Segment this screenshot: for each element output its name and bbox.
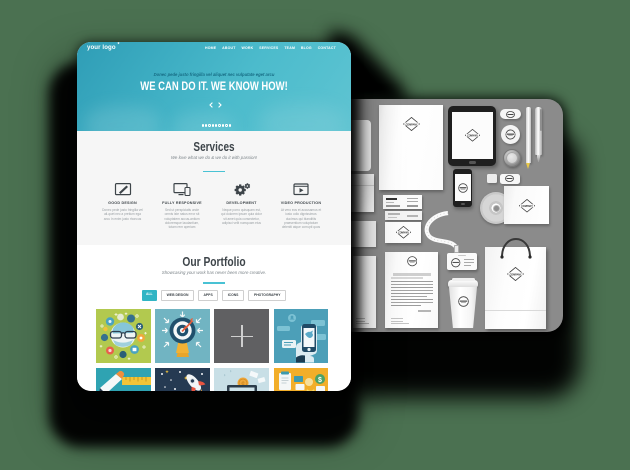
svg-text:COMPANY: COMPANY <box>521 205 533 208</box>
svg-text:$: $ <box>318 376 322 383</box>
svg-text:COMPANY: COMPANY <box>398 231 409 234</box>
svg-text:COMPANY: COMPANY <box>406 123 418 126</box>
svg-text:COMPANY: COMPANY <box>467 134 478 137</box>
svg-text:COMPANY: COMPANY <box>509 273 521 276</box>
